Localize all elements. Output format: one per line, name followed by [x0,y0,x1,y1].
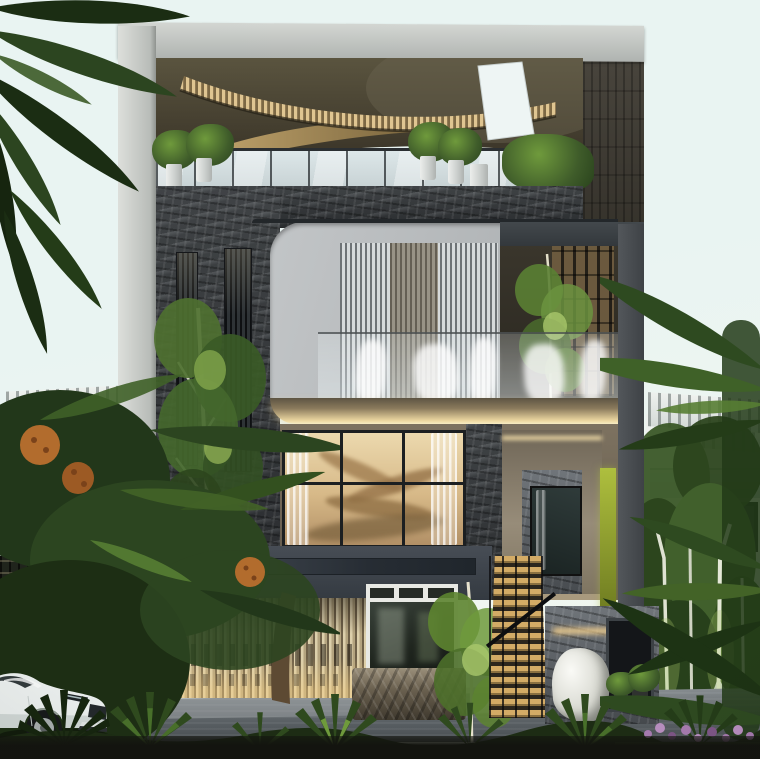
transom-pane [399,588,423,598]
architectural-render [0,0,760,759]
bottom-shadow-strip [0,736,760,759]
entry-ceiling-light [502,436,602,440]
palm-fronds-top-left [0,0,230,360]
window-mullion [402,430,405,548]
planter-pot [420,156,436,180]
curtain [431,433,457,545]
window-mullion [340,430,343,548]
tree-reflection [378,608,404,664]
transom-pane [370,588,394,598]
canopy-side-wall [583,46,644,232]
glass-reflection [522,343,566,406]
terrace-plant-mass [502,134,594,192]
planter-pot [448,160,464,184]
